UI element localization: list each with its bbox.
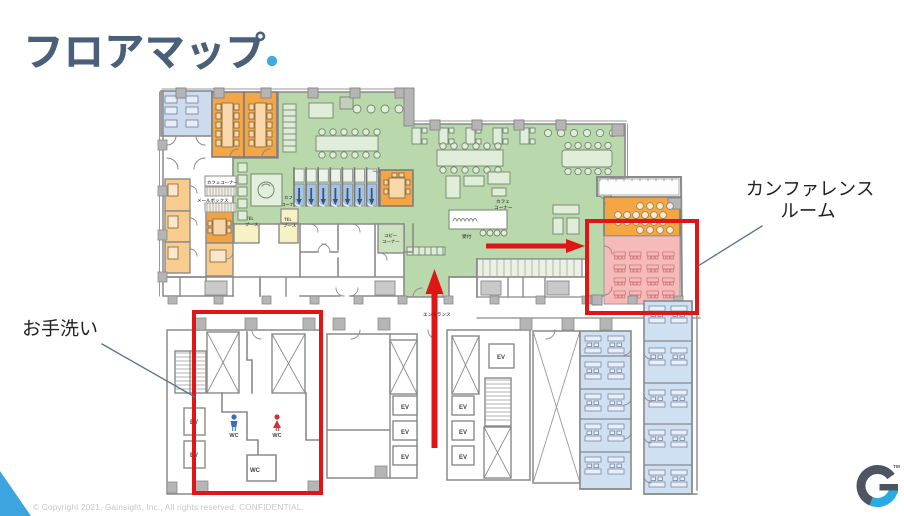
svg-text:EV: EV	[459, 455, 467, 461]
svg-text:EV: EV	[401, 405, 409, 411]
svg-text:WC: WC	[250, 468, 261, 474]
svg-text:EV: EV	[497, 355, 505, 361]
svg-text:© Copyright 2021, Gainsight, I: © Copyright 2021, Gainsight, Inc., All r…	[33, 503, 304, 512]
svg-text:TM: TM	[893, 464, 900, 470]
svg-text:EV: EV	[459, 405, 467, 411]
svg-text:EV: EV	[401, 455, 409, 461]
svg-text:EV: EV	[401, 430, 409, 436]
svg-text:EV: EV	[459, 430, 467, 436]
svg-text:WC: WC	[272, 433, 281, 439]
svg-text:WC: WC	[229, 433, 238, 439]
